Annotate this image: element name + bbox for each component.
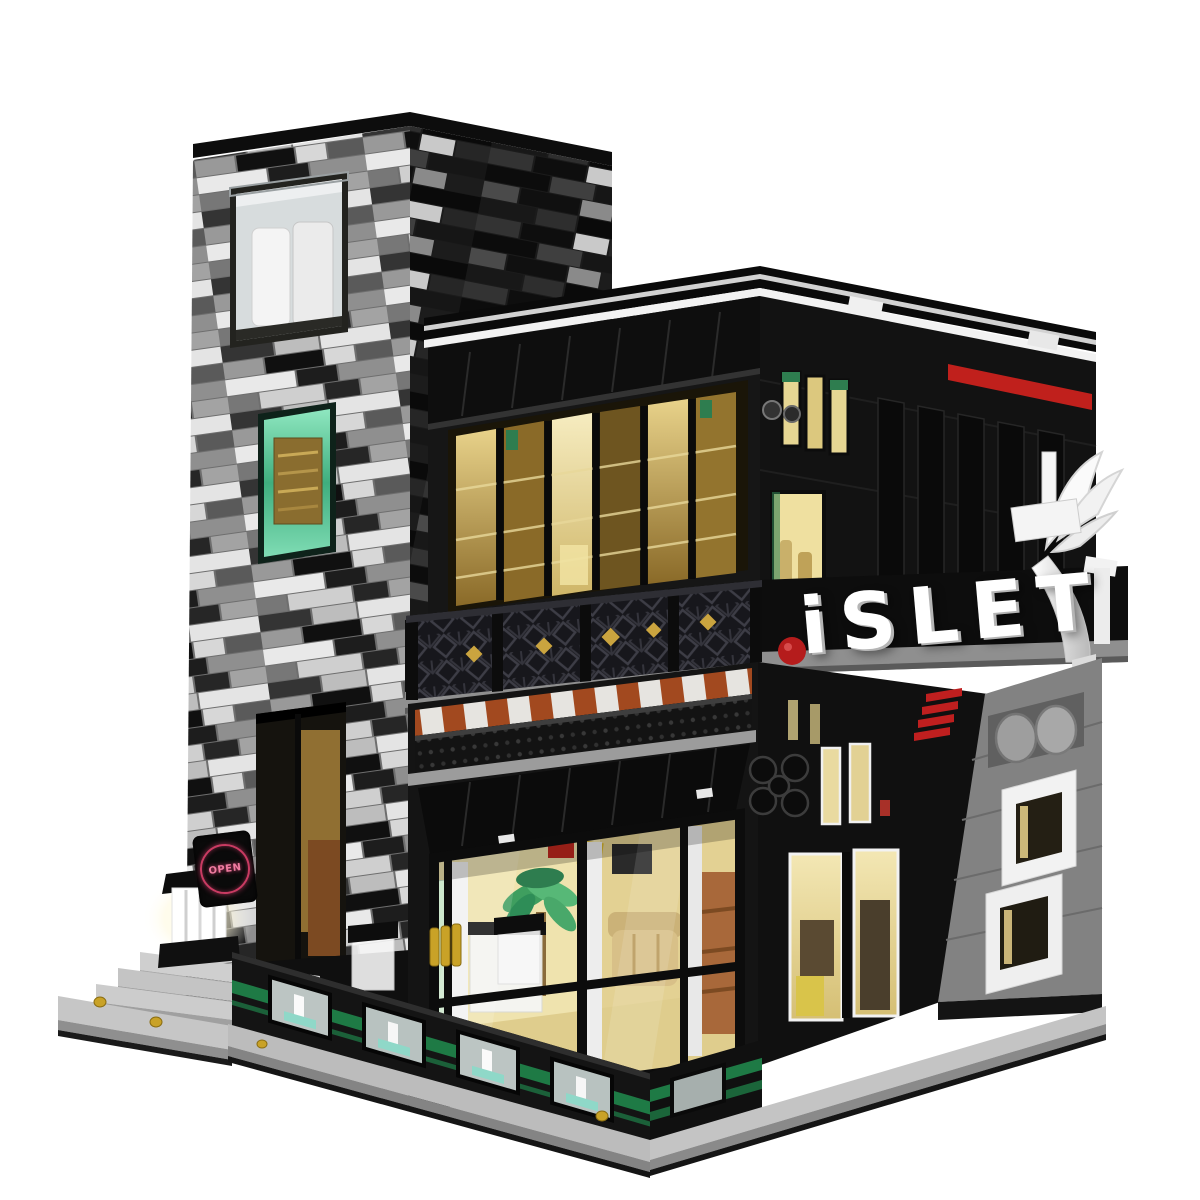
tower-lower-window (256, 702, 346, 968)
warm-slit (1004, 910, 1012, 964)
terrace-table (348, 921, 398, 990)
interior-column (688, 826, 702, 1056)
interior-silhouette (800, 920, 834, 976)
white-canister (293, 222, 333, 326)
slit-window (810, 704, 820, 744)
tower-teal-window (258, 402, 336, 564)
gold-stud (150, 1017, 162, 1027)
open-sign: OPEN (192, 830, 258, 909)
gold-stud (257, 1040, 267, 1048)
wood-door (308, 840, 340, 956)
terrace-table (494, 913, 544, 984)
interior-silhouette (860, 900, 890, 1010)
tower-display-window (230, 172, 348, 348)
disc-vent (1036, 706, 1076, 754)
slit-window (788, 700, 798, 740)
round-vent (763, 401, 781, 419)
product-photo-scene: iSLET OPEN (0, 0, 1200, 1200)
white-canister (252, 228, 290, 326)
interior-silhouette (796, 976, 824, 1016)
building-illustration (0, 0, 1200, 1200)
open-sign-label: OPEN (208, 862, 242, 877)
gold-stud (596, 1111, 608, 1121)
white-window-lower (986, 874, 1062, 994)
lit-pane (560, 545, 588, 585)
red-detail (880, 800, 890, 816)
gold-stud (94, 997, 106, 1007)
amber-window-wall (428, 296, 760, 622)
disc-vent (996, 714, 1036, 762)
narrow-door-window (850, 744, 870, 822)
glass-doors (790, 850, 898, 1020)
warm-slit (1020, 806, 1028, 858)
white-window-upper (1002, 770, 1076, 886)
green-glass-bit (700, 400, 712, 418)
gold-canisters (430, 924, 461, 966)
narrow-door-window (822, 748, 840, 824)
sign-end-post (1094, 568, 1110, 644)
sign-red-dot (778, 637, 806, 665)
round-vent (784, 406, 800, 422)
open-sign-ring: OPEN (197, 841, 253, 897)
green-glass-bit (506, 430, 518, 450)
interior-column (586, 842, 602, 1080)
